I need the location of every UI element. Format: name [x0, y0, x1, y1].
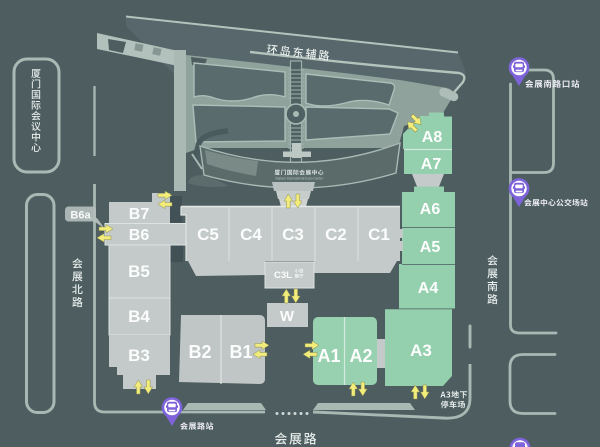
svg-text:B2: B2 — [188, 342, 211, 362]
svg-text:C2: C2 — [325, 225, 347, 244]
svg-text:C3: C3 — [282, 225, 304, 244]
svg-text:B6: B6 — [129, 227, 150, 244]
svg-text:B3: B3 — [128, 346, 150, 365]
svg-text:A2: A2 — [349, 346, 372, 366]
svg-text:A6: A6 — [420, 201, 441, 218]
svg-text:A4: A4 — [418, 280, 439, 297]
svg-text:A7: A7 — [421, 156, 442, 173]
svg-text:B6a: B6a — [70, 210, 91, 222]
svg-text:B5: B5 — [128, 262, 150, 281]
svg-text:A5: A5 — [420, 239, 441, 256]
svg-text:Xiamen International Expo Cent: Xiamen International Expo Center — [275, 177, 324, 181]
svg-text:B1: B1 — [229, 342, 252, 362]
svg-text:A8: A8 — [422, 129, 443, 146]
svg-text:C4: C4 — [240, 225, 262, 244]
svg-text:W: W — [280, 308, 295, 325]
svg-text:A1: A1 — [317, 346, 340, 366]
svg-text:B4: B4 — [128, 307, 150, 326]
svg-text:C3L: C3L — [274, 270, 292, 281]
svg-text:B7: B7 — [129, 206, 150, 223]
svg-text:A3: A3 — [410, 341, 432, 360]
svg-text:C5: C5 — [197, 225, 219, 244]
svg-text:C1: C1 — [368, 225, 390, 244]
